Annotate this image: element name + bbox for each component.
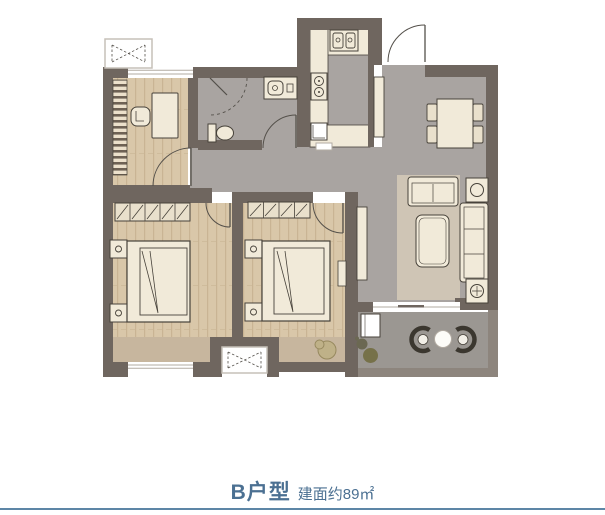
stove xyxy=(311,73,327,100)
toilet-bowl xyxy=(217,126,234,140)
unit-type-label: B户型 xyxy=(231,481,291,504)
bed-bedroom1 xyxy=(127,241,190,322)
bath-sink-counter xyxy=(264,77,297,99)
hallway-floor xyxy=(190,147,382,192)
bed-bedroom2 xyxy=(262,241,330,321)
wall-niche-top xyxy=(210,337,267,347)
dining-chair-left-2 xyxy=(427,126,437,143)
balcony-chair-1-seat xyxy=(418,335,428,345)
wall-bathroom-study-divider xyxy=(188,78,198,148)
wall-bedroom2-right xyxy=(345,192,358,312)
study-desk xyxy=(152,93,178,138)
balcony-rail-right xyxy=(488,310,498,377)
toilet-tank xyxy=(208,124,216,142)
caption: B户型建面约89㎡ xyxy=(0,476,605,506)
entry-shoe-cabinet xyxy=(374,77,384,137)
bedroom2-plant-small xyxy=(315,340,324,349)
balcony-chair-2-seat xyxy=(458,335,468,345)
balcony-washer xyxy=(361,314,380,337)
wall-kitchen-right-lower xyxy=(368,65,374,147)
unit-area-label: 建面约89㎡ xyxy=(298,486,375,503)
dining-chair-left-1 xyxy=(427,104,437,121)
wall-balcony-left xyxy=(345,312,358,377)
wall-niche-left-stub xyxy=(210,347,222,377)
nightstand-2b xyxy=(245,303,262,321)
window-bedroom1 xyxy=(128,362,193,372)
study-shelf xyxy=(113,80,127,175)
wall-left xyxy=(103,67,113,377)
floor-plan-svg xyxy=(0,0,605,515)
dining-chair-right-1 xyxy=(473,104,483,121)
balcony-plant-2 xyxy=(363,348,378,363)
balcony-table xyxy=(435,331,452,348)
balcony-slider-handle xyxy=(398,305,424,308)
entry-door-arc xyxy=(388,25,425,62)
balcony-plant-dot xyxy=(355,337,359,341)
wall-kitchen-right-upper xyxy=(368,18,382,65)
dining-chair-right-2 xyxy=(473,126,483,143)
wall-bottom-left-corner xyxy=(103,362,128,377)
balcony-plant-1 xyxy=(357,339,368,350)
wall-bedroom2-top xyxy=(243,192,313,203)
tv-cabinet xyxy=(357,207,367,280)
wall-top-left-b xyxy=(193,67,302,78)
wall-niche-right-stub xyxy=(267,337,279,377)
balcony-rail-bottom xyxy=(358,368,498,377)
stove-burner-dot-1 xyxy=(318,80,320,82)
wall-bedroom-divider xyxy=(232,192,243,347)
nightstand-2a xyxy=(245,240,262,258)
bedroom1-bay-band xyxy=(113,337,210,362)
wall-study-bottom xyxy=(103,185,190,203)
nightstand-1a xyxy=(110,240,127,258)
floor-plan xyxy=(0,0,605,515)
wall-bottom-bedroom1 xyxy=(193,362,210,377)
stove-burner-dot-2 xyxy=(318,91,320,93)
wall-kitchen-left xyxy=(297,18,310,147)
coffee-table xyxy=(416,215,449,267)
side-table-top xyxy=(466,178,488,202)
study-chair xyxy=(131,107,150,126)
nightstand-1b xyxy=(110,304,127,322)
dining-table xyxy=(437,99,473,148)
bedroom2-wall-shelf xyxy=(338,261,346,286)
wall-bedroom1-door-stub xyxy=(190,188,212,203)
wall-bottom-bedroom2 xyxy=(279,362,345,372)
bottom-divider-line xyxy=(0,508,605,510)
kitchen-fridge xyxy=(311,123,327,140)
kitchen-slider-panel xyxy=(316,143,332,150)
